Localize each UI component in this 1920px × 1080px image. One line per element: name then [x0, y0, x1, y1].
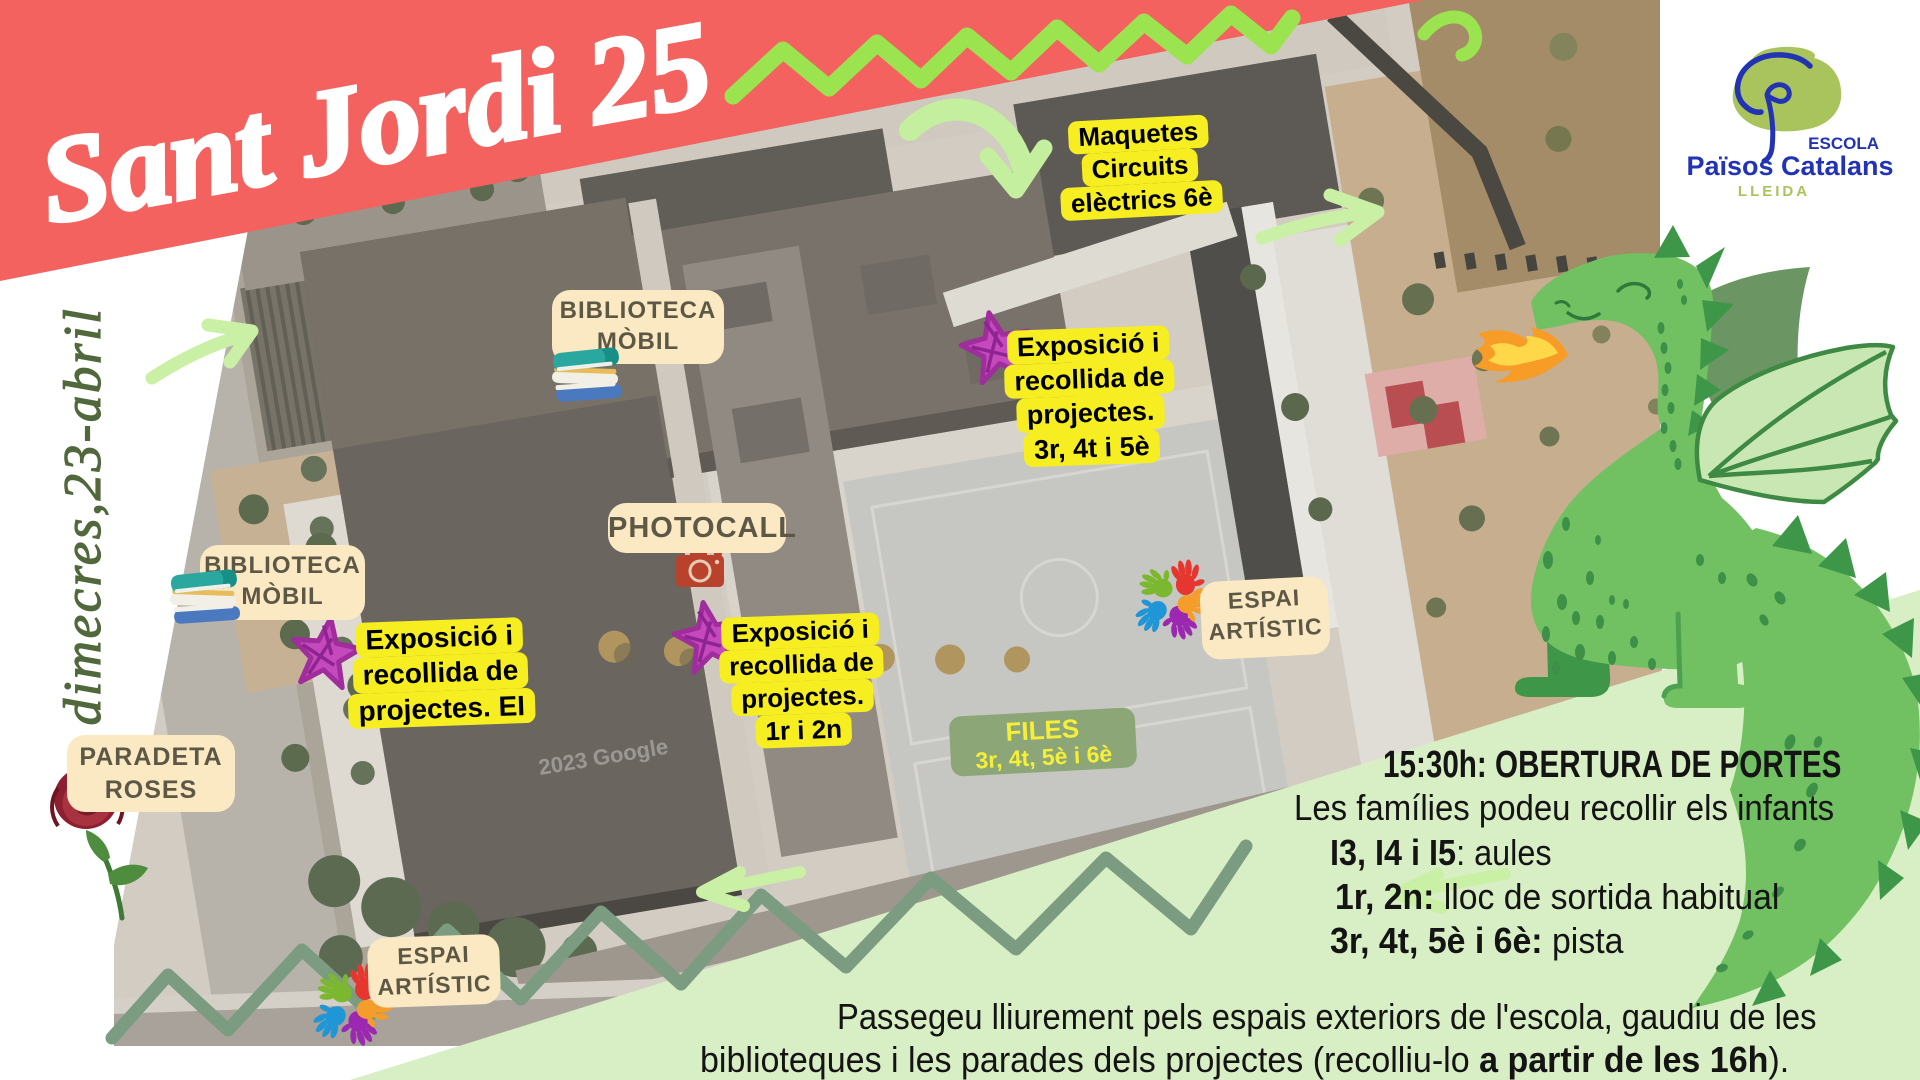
svg-text:Països Catalans: Països Catalans	[1686, 151, 1893, 181]
svg-text:LLEIDA: LLEIDA	[1738, 183, 1810, 200]
